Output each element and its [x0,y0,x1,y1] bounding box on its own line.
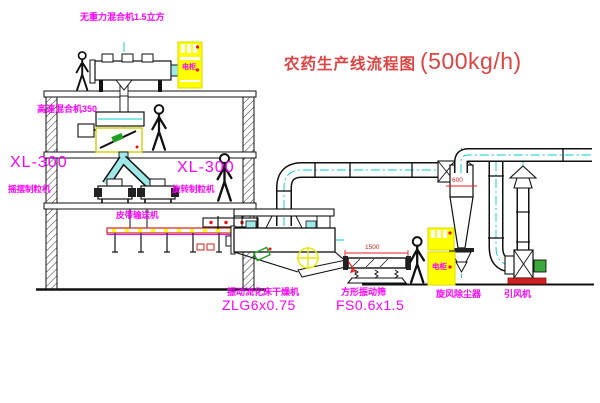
diagram-title: 农药生产线流程图 (500kg/h) [284,48,522,75]
fan-base [508,278,546,284]
square-sieve [343,250,411,283]
label-fan: 引风机 [504,290,531,299]
person-ground [410,237,423,282]
label-belt-conveyor: 皮带输送机 [116,211,159,220]
label-dryer-name: 振动流化床干燥机 [227,288,299,297]
process-flow-diagram: 农药生产线流程图 (500kg/h) 无重力混合机1.5立方 高速混合机350 … [0,0,600,403]
label-granulator-mid-model: XL-300 [177,160,235,176]
gravity-mixer [90,54,183,113]
indicator-light [448,265,451,268]
dimension-sieve: 1500 [365,245,379,252]
title-text: 农药生产线流程图 [284,52,416,74]
label-granulator-mid-name: 旋转制粒机 [172,185,215,194]
label-cabinet-top: 电柜 [182,64,196,71]
dryer-exhaust-duct [266,162,440,228]
person-top-floor [77,52,88,90]
title-capacity: (500kg/h) [420,48,522,75]
dimension-cyclone: 600 [452,178,463,185]
label-sieve-model: FS0.6x1.5 [336,298,404,312]
person-second-floor [152,105,165,150]
indicator-light [196,45,199,48]
label-granulator-left-model: XL-300 [10,155,68,171]
label-cyclone: 旋风除尘器 [436,290,481,299]
granulator-left-machine [94,179,136,203]
exhaust-stack [510,166,536,256]
fan-motor [534,260,546,272]
indicator-light [448,231,451,234]
label-high-speed-mixer: 高速混合机350 [37,105,97,114]
induced-draft-fan [505,250,546,284]
indicator-light [196,68,199,71]
control-cabinet-right [428,228,455,285]
label-gravity-mixer: 无重力混合机1.5立方 [80,13,165,22]
label-dryer-model: ZLG6x0.75 [222,298,296,312]
label-sieve-name: 方形振动筛 [341,288,386,297]
label-cabinet-right: 电柜 [432,263,447,271]
label-granulator-left-name: 摇摆制粒机 [8,185,51,194]
